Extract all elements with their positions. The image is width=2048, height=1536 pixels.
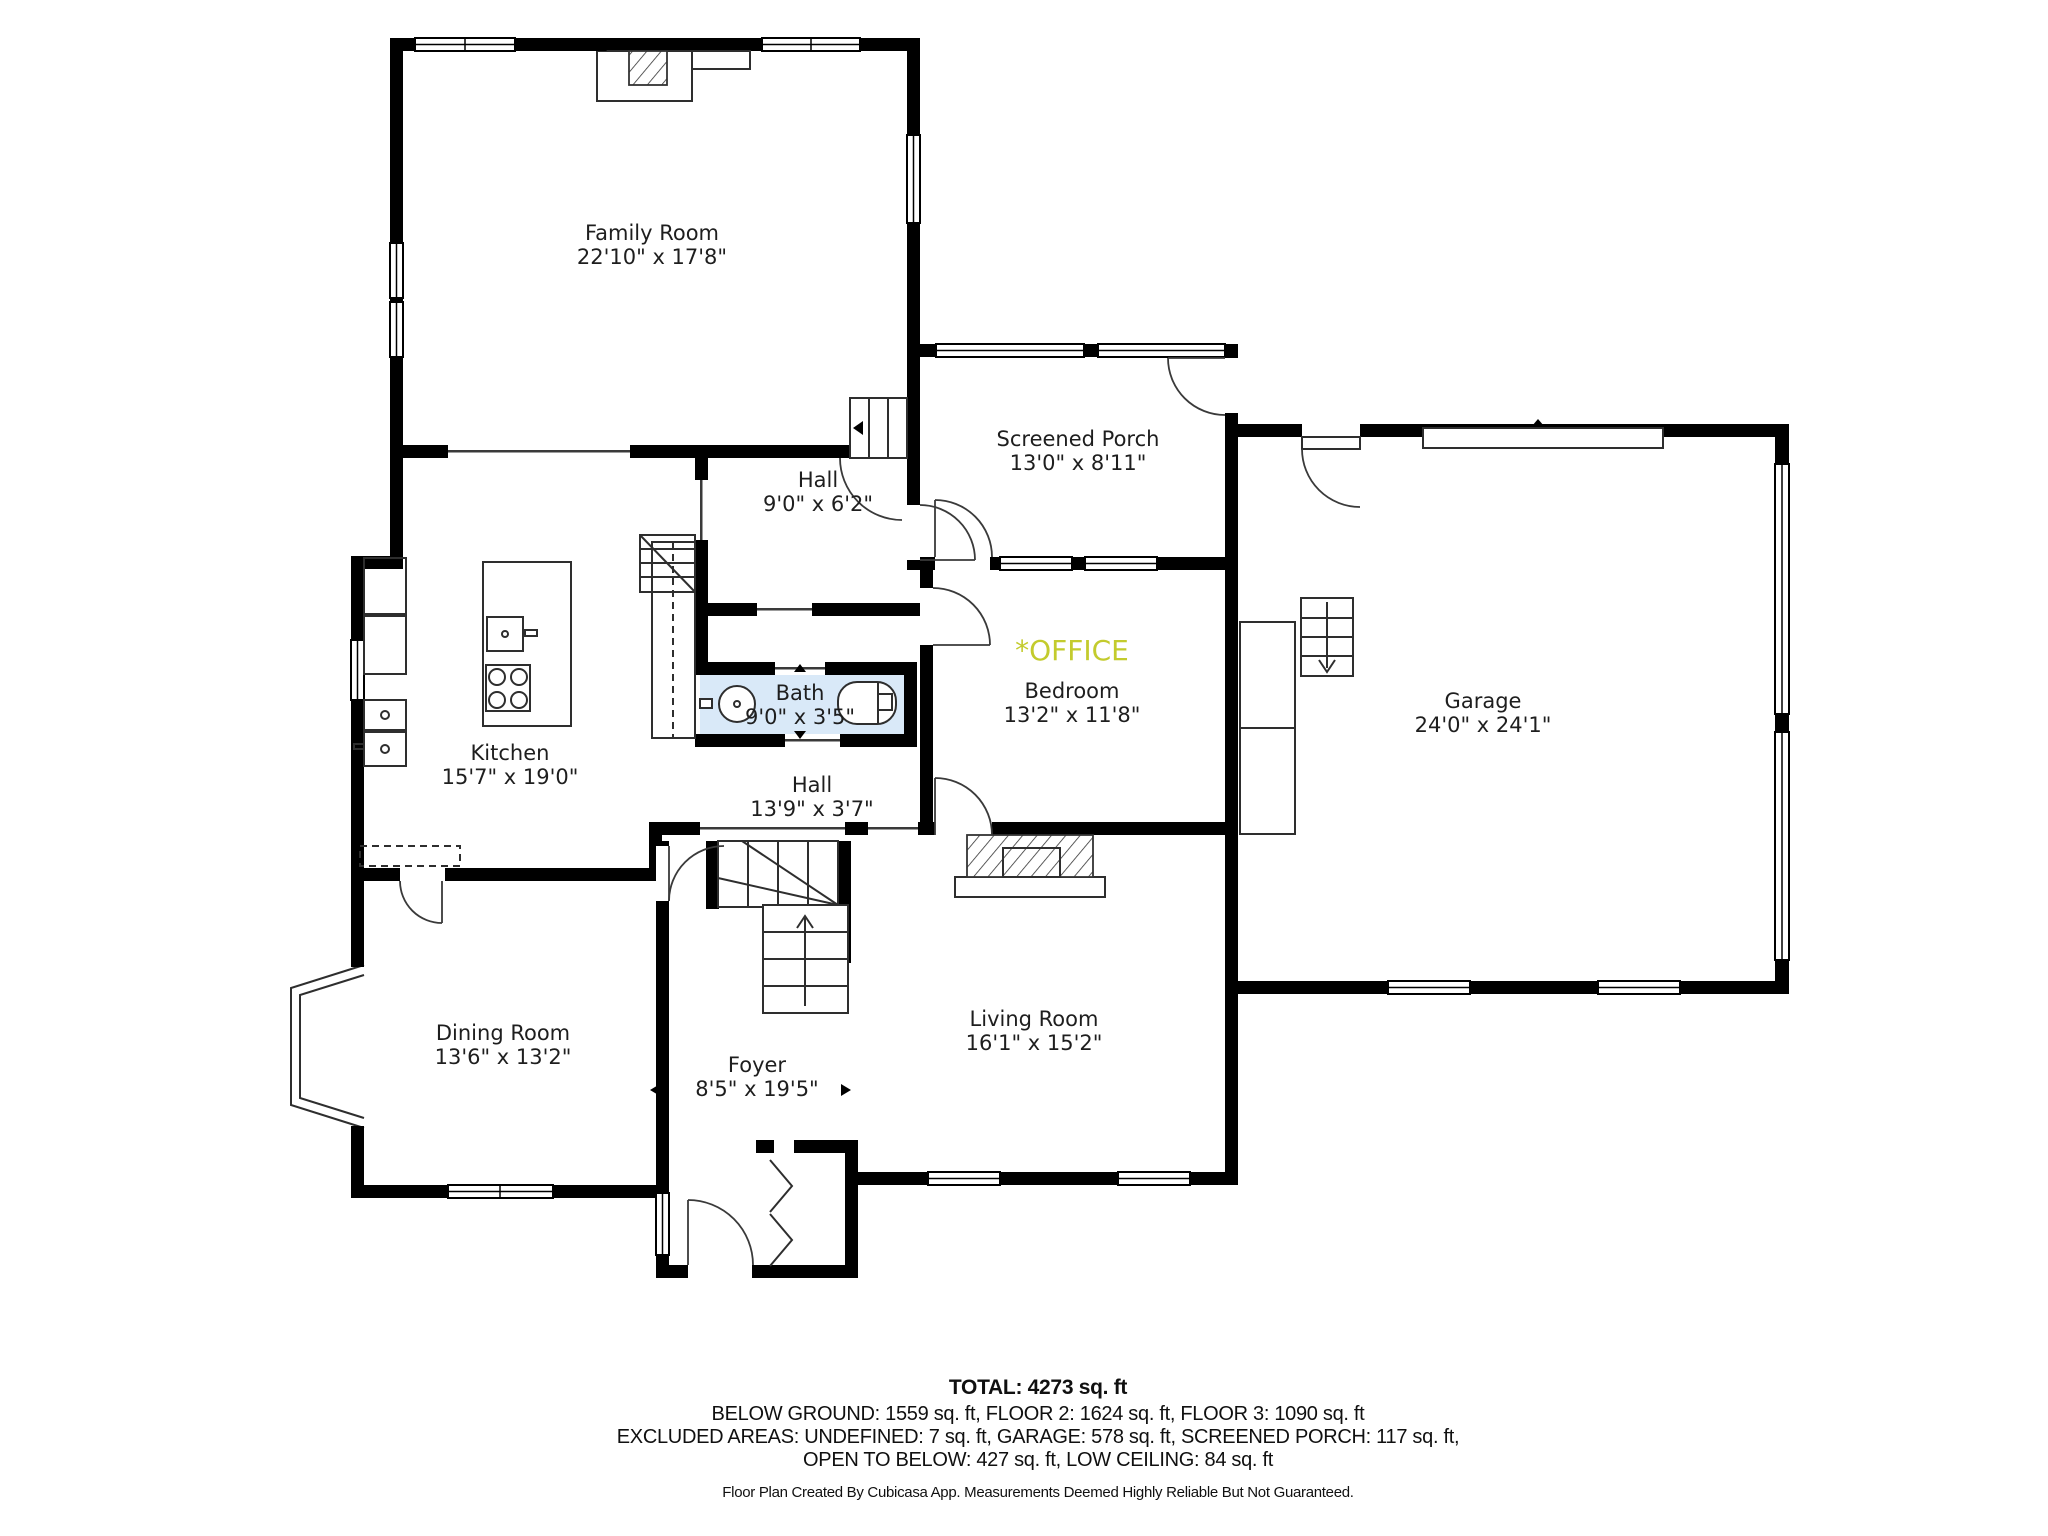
room-dims: 13'6" x 13'2" (435, 1045, 572, 1069)
room-dims: 13'2" x 11'8" (1004, 703, 1141, 727)
room-name: Hall (792, 773, 832, 797)
room-label-kitchen: Kitchen 15'7" x 19'0" (442, 741, 579, 789)
room-dims: 22'10" x 17'8" (577, 245, 727, 269)
fireplace-family-room (597, 51, 750, 101)
summary-line1: BELOW GROUND: 1559 sq. ft, FLOOR 2: 1624… (712, 1403, 1366, 1425)
room-label-living-room: Living Room 16'1" x 15'2" (966, 1007, 1103, 1055)
room-dims: 8'5" x 19'5" (695, 1077, 818, 1101)
room-name: Bedroom (1025, 679, 1120, 703)
room-label-dining-room: Dining Room 13'6" x 13'2" (435, 1021, 572, 1069)
stairs-foyer (718, 841, 848, 1013)
room-dims: 24'0" x 24'1" (1415, 713, 1552, 737)
garage-door-header (1423, 428, 1663, 448)
room-label-screened-porch: Screened Porch 13'0" x 8'11" (997, 427, 1160, 475)
screened-porch-screen-windows (936, 344, 1225, 357)
family-room-right-window (907, 135, 920, 223)
room-label-hall-lower: Hall 13'9" x 3'7" (750, 773, 873, 821)
room-dims: 16'1" x 15'2" (966, 1031, 1103, 1055)
office-tag: *OFFICE (1015, 634, 1129, 667)
room-dims: 13'0" x 8'11" (1010, 451, 1147, 475)
room-name: Family Room (585, 221, 719, 245)
room-name: Kitchen (471, 741, 550, 765)
doors (400, 358, 1360, 1266)
room-label-garage: Garage 24'0" x 24'1" (1415, 689, 1552, 737)
room-dims: 15'7" x 19'0" (442, 765, 579, 789)
foyer-left-window (656, 1193, 669, 1255)
room-label-bedroom-office: *OFFICE Bedroom 13'2" x 11'8" (1004, 634, 1141, 727)
garage-right-doors (1775, 464, 1789, 960)
room-name: Screened Porch (997, 427, 1160, 451)
family-room-top-window-left (415, 38, 515, 51)
summary-total: TOTAL: 4273 sq. ft (949, 1376, 1127, 1399)
room-label-foyer: Foyer 8'5" x 19'5" (695, 1053, 818, 1101)
room-name: Dining Room (436, 1021, 570, 1045)
summary-footer: Floor Plan Created By Cubicasa App. Meas… (722, 1484, 1353, 1501)
family-room-top-window-right (762, 38, 860, 51)
utility-closet (1240, 622, 1295, 834)
room-name: Living Room (970, 1007, 1099, 1031)
room-name: Hall (798, 468, 838, 492)
stairs-family-room (850, 398, 907, 458)
summary-line2: EXCLUDED AREAS: UNDEFINED: 7 sq. ft, GAR… (617, 1426, 1459, 1448)
room-dims: 13'9" x 3'7" (750, 797, 873, 821)
room-label-family-room: Family Room 22'10" x 17'8" (577, 221, 727, 269)
stairs-kitchen-landing (640, 535, 695, 592)
floor-plan-canvas: Family Room 22'10" x 17'8" Screened Porc… (0, 0, 2048, 1536)
room-dims: 9'0" x 3'5" (745, 705, 855, 729)
room-name: Foyer (728, 1053, 787, 1077)
room-label-hall-upper: Hall 9'0" x 6'2" (763, 468, 873, 516)
room-dims: 9'0" x 6'2" (763, 492, 873, 516)
dining-bottom-window (448, 1185, 553, 1198)
room-name: Garage (1445, 689, 1522, 713)
fireplace-living-room (955, 835, 1105, 897)
stairs-garage (1301, 598, 1353, 676)
area-summary: TOTAL: 4273 sq. ft BELOW GROUND: 1559 sq… (617, 1376, 1459, 1501)
kitchen-left-window (351, 640, 364, 700)
summary-line3: OPEN TO BELOW: 427 sq. ft, LOW CEILING: … (803, 1449, 1274, 1471)
room-name: Bath (776, 681, 825, 705)
